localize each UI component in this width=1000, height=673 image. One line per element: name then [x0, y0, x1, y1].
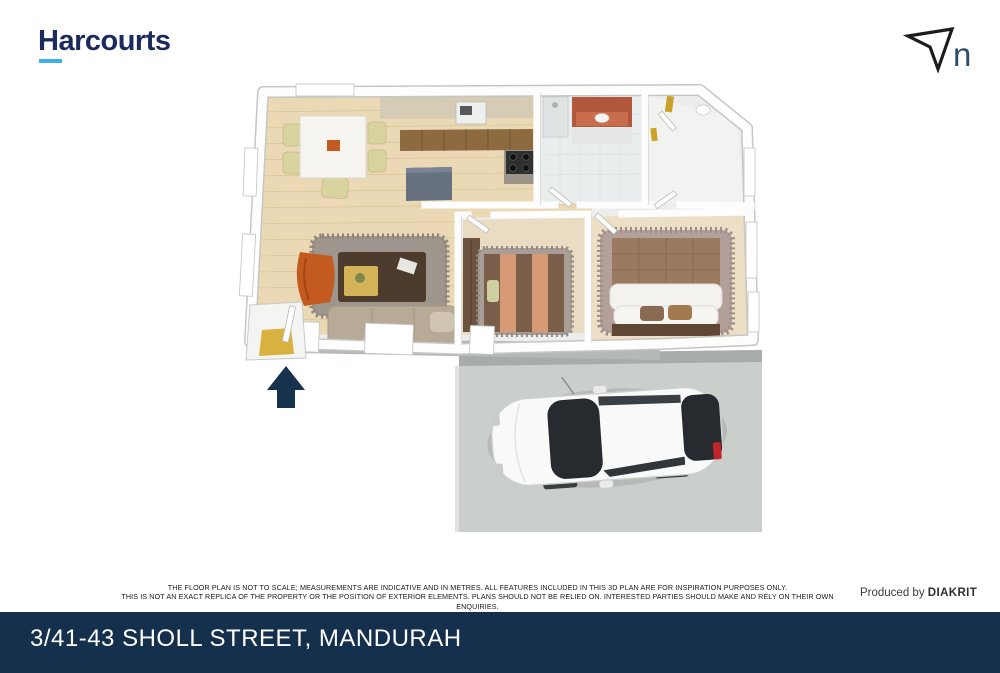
toilet	[696, 105, 710, 115]
headboard	[612, 324, 720, 336]
property-address: 3/41-43 SHOLL STREET, MANDURAH	[0, 625, 462, 661]
car-headlight	[496, 463, 504, 477]
orange-armchair	[297, 252, 335, 306]
car-mirror	[592, 385, 607, 394]
kitchen-cabinets	[400, 129, 533, 151]
disclaimer: THE FLOOR PLAN IS NOT TO SCALE; MEASUREM…	[115, 583, 840, 611]
table-centerpiece	[327, 140, 340, 151]
car-headlight	[492, 411, 500, 425]
vanity-cabinet	[572, 128, 632, 144]
credit-prefix: Produced by	[860, 587, 928, 599]
credit-brand: DIAKRIT	[928, 587, 977, 599]
car-mirror	[599, 480, 614, 489]
master-pillows	[614, 306, 718, 326]
floorplan-3d	[0, 0, 1000, 673]
footer-address-bar: 3/41-43 SHOLL STREET, MANDURAH	[0, 612, 1000, 673]
master-bedroom	[600, 230, 732, 336]
bedroom-2	[463, 238, 572, 335]
flyer-page: Harcourts n	[0, 0, 1000, 673]
disclaimer-line1: THE FLOOR PLAN IS NOT TO SCALE; MEASUREM…	[115, 583, 840, 592]
car-windshield	[546, 398, 603, 480]
accent-pillow	[668, 305, 692, 320]
disclaimer-line2: THIS IS NOT AN EXACT REPLICA OF THE PROP…	[115, 592, 840, 611]
bed2-pillow	[487, 280, 499, 302]
entry-porch	[246, 302, 306, 360]
basin	[595, 114, 609, 123]
entrance-arrow-icon	[267, 366, 305, 408]
sofa-cushion	[430, 312, 454, 332]
produced-by-credit: Produced by DIAKRIT	[860, 587, 977, 599]
accent-pillow	[640, 306, 664, 321]
car-taillight	[713, 442, 722, 460]
